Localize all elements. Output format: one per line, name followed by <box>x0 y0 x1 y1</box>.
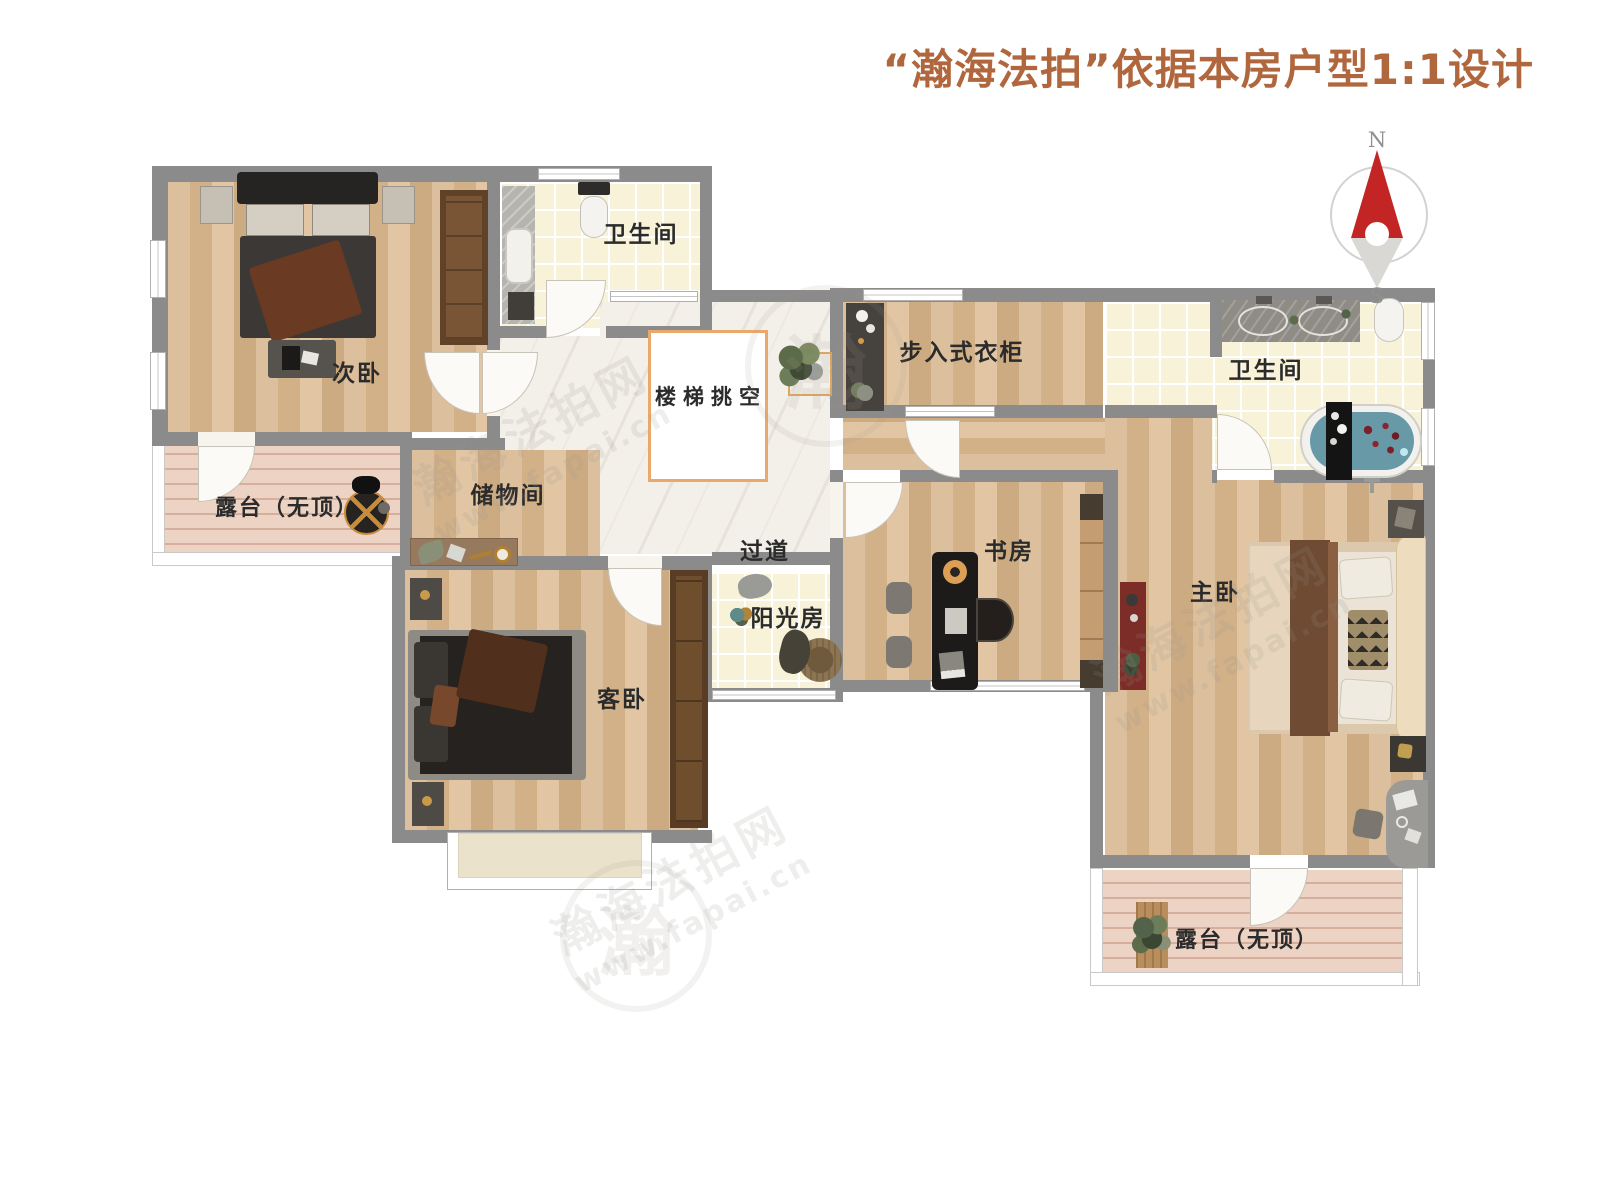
wall <box>152 166 712 182</box>
terrace-bottom-parapet-right <box>1402 868 1418 986</box>
bathtub-drain <box>1400 448 1408 456</box>
door-opening <box>198 432 255 446</box>
wall <box>1212 470 1217 483</box>
wall <box>392 556 405 843</box>
door-opening <box>830 482 843 538</box>
wall <box>830 470 843 482</box>
desk-lamp <box>943 560 967 584</box>
window <box>150 240 166 298</box>
wall <box>152 432 412 446</box>
wall <box>1090 692 1103 868</box>
master-runner <box>1290 540 1330 736</box>
bay-window-sill <box>458 833 642 878</box>
red-cabinet-decor <box>1126 594 1138 606</box>
nightstand <box>200 186 233 224</box>
study-wardrobe <box>1080 494 1103 688</box>
study-wardrobe-top <box>1080 494 1103 520</box>
pillow <box>246 204 304 236</box>
study-wardrobe-bottom <box>1080 660 1103 688</box>
wall <box>1090 855 1250 868</box>
room-label-storage: 储物间 <box>471 476 546 510</box>
bench-decor <box>282 346 300 370</box>
bed-headboard <box>237 172 378 204</box>
study-stool <box>886 636 912 668</box>
dresser-dot <box>858 338 864 344</box>
plant-hall <box>774 338 830 394</box>
bathtub-faucet-stem <box>1370 478 1374 493</box>
room-label-guest-bedroom: 客卧 <box>597 680 647 714</box>
vanity-plant <box>1286 312 1302 328</box>
vanity-sink <box>1238 306 1288 336</box>
study-stool <box>886 582 912 614</box>
window <box>905 406 995 417</box>
master-pillow <box>1339 678 1394 722</box>
terrace-bottom-parapet-bottom <box>1090 972 1420 986</box>
bath-cabinet <box>508 292 534 320</box>
wall <box>1210 295 1222 357</box>
desk-papers <box>939 651 966 679</box>
floor-master-notch <box>1105 418 1212 480</box>
room-label-walk-in-closet: 步入式衣柜 <box>900 333 1025 367</box>
red-cabinet-decor <box>1130 614 1138 622</box>
vanity-ring <box>1396 816 1408 828</box>
vanity-faucet <box>1256 296 1272 304</box>
caddy-dot <box>1330 438 1337 445</box>
dresser-plate <box>856 310 868 322</box>
desk-pad <box>945 608 967 634</box>
master-pillow <box>1339 556 1394 600</box>
study-chair <box>976 598 1014 642</box>
wall <box>1103 470 1118 692</box>
window <box>712 690 836 700</box>
page-title: “瀚海法拍”依据本房户型1:1设计 <box>883 36 1534 97</box>
room-label-secondary-bedroom: 次卧 <box>332 354 382 388</box>
room-label-stair-void: 楼梯挑空 <box>655 381 767 411</box>
floor-corridor <box>843 418 1118 470</box>
wall <box>712 290 832 302</box>
wall <box>700 166 712 338</box>
window <box>1421 408 1435 466</box>
master-runner-edge <box>1328 542 1338 732</box>
window <box>150 352 166 410</box>
room-label-study: 书房 <box>984 532 1034 566</box>
window <box>610 291 698 302</box>
door-bathroom-top <box>546 280 606 338</box>
compass-hub <box>1365 222 1389 246</box>
wall <box>900 470 1103 482</box>
sink <box>505 228 533 284</box>
red-cabinet-plant <box>1124 648 1142 678</box>
window <box>538 168 620 180</box>
room-label-terrace-left: 露台（无顶） <box>215 490 359 522</box>
watermark-emblem-char: 瀚 <box>598 881 674 991</box>
room-label-sunroom: 阳光房 <box>751 599 826 633</box>
wardrobe-secondary-panel <box>446 196 482 339</box>
dresser-plate <box>866 324 875 333</box>
compass-north-label: N <box>1368 128 1386 152</box>
pillow <box>312 204 370 236</box>
nightstand-lamp <box>422 796 432 806</box>
wall <box>402 438 505 450</box>
room-label-hallway: 过道 <box>740 532 790 566</box>
terrace-left-parapet-left <box>152 444 165 566</box>
room-label-terrace-bottom: 露台（无顶） <box>1175 922 1319 954</box>
toilet-tank <box>578 182 610 195</box>
terrace-left-parapet-bottom <box>152 552 408 566</box>
dresser-plant <box>850 380 880 406</box>
master-headboard <box>1396 534 1426 742</box>
room-label-bathroom-top: 卫生间 <box>604 215 679 249</box>
nightstand-lamp <box>420 590 430 600</box>
counter-ring <box>494 546 511 563</box>
wall <box>500 326 546 338</box>
nightstand <box>382 186 415 224</box>
terrace-plant <box>1124 908 1180 964</box>
compass-south-label: S <box>1370 284 1384 308</box>
window <box>1421 302 1435 360</box>
vanity-faucet <box>1316 296 1332 304</box>
caddy-dot <box>1337 424 1347 434</box>
master-cushions <box>1348 610 1388 670</box>
vanity-plant <box>1338 306 1354 322</box>
room-label-bathroom-master: 卫生间 <box>1229 351 1304 385</box>
wall <box>1105 405 1217 418</box>
floor-plan: 次卧 卫生间 楼梯挑空 过道 步入式衣柜 卫生间 露台（无顶） 储物间 客卧 阳… <box>0 0 1600 1200</box>
wall <box>487 182 500 352</box>
window <box>863 289 963 301</box>
nightstand-decor <box>1397 743 1413 759</box>
caddy-dot <box>1331 412 1339 420</box>
wardrobe-guest-panel <box>676 576 702 822</box>
master-stool <box>1352 808 1384 840</box>
terrace-bottom-parapet-left <box>1090 868 1103 986</box>
room-label-master-bedroom: 主卧 <box>1190 573 1240 607</box>
terrace-cup <box>378 502 390 514</box>
